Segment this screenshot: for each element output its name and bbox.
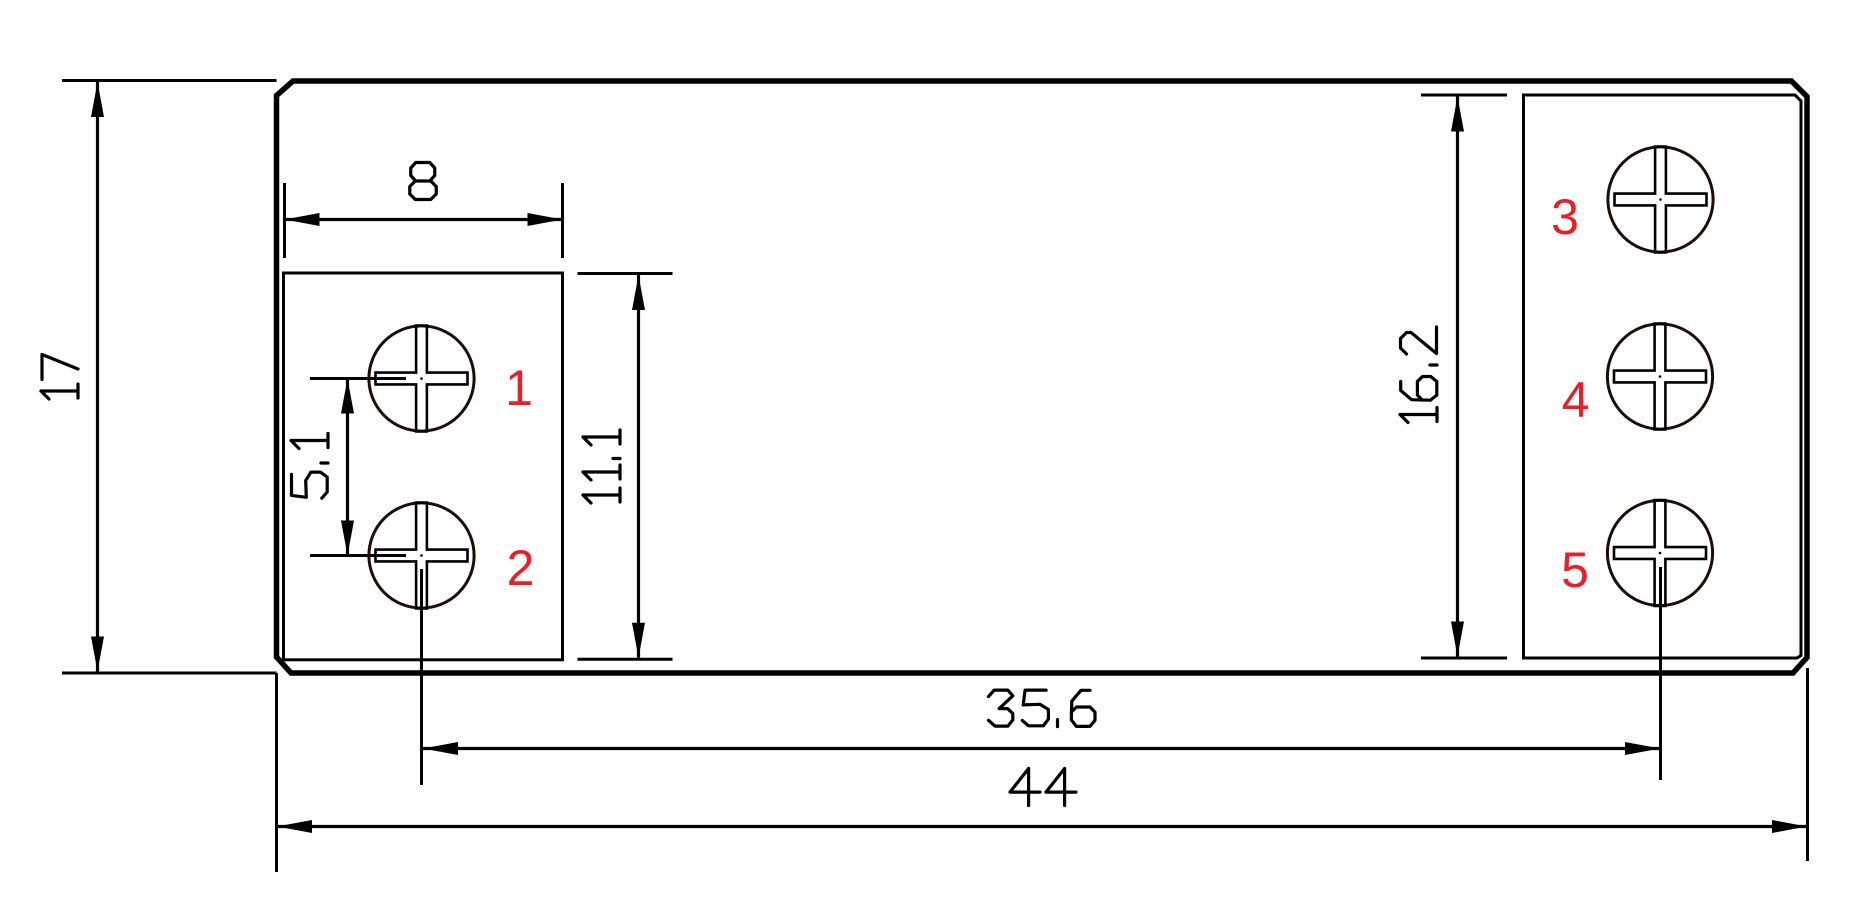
svg-text:1: 1 bbox=[505, 360, 533, 416]
svg-text:5: 5 bbox=[1561, 542, 1589, 598]
svg-text:3: 3 bbox=[1551, 189, 1579, 245]
svg-text:2: 2 bbox=[507, 540, 535, 596]
svg-text:4: 4 bbox=[1562, 372, 1590, 428]
